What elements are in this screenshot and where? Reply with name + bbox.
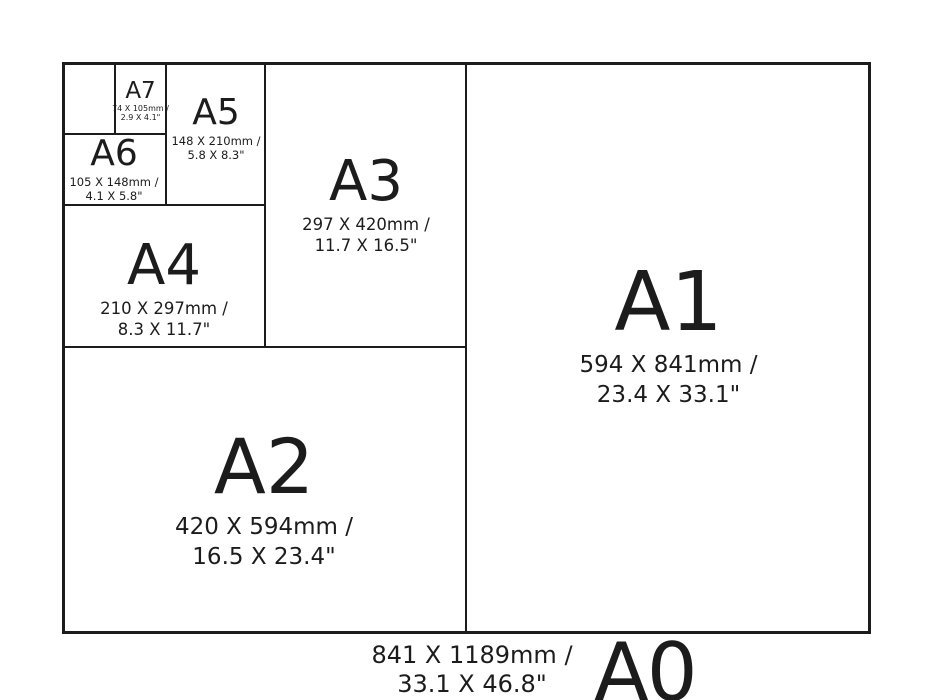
a0-label: A0 xyxy=(594,633,696,700)
a5-dims-mm: 148 X 210mm / xyxy=(171,134,260,148)
a6-dimensions: 105 X 148mm / 4.1 X 5.8" xyxy=(69,175,158,203)
a1-label: A1 xyxy=(614,261,722,345)
a1-dims-mm: 594 X 841mm / xyxy=(579,351,757,381)
a3-dims-mm: 297 X 420mm / xyxy=(302,215,430,236)
a5-dimensions: 148 X 210mm / 5.8 X 8.3" xyxy=(171,134,260,162)
a1-dims-in: 23.4 X 33.1" xyxy=(579,381,757,411)
a3-dims-in: 11.7 X 16.5" xyxy=(302,236,430,257)
a4-label: A4 xyxy=(127,237,201,294)
a2-dims-mm: 420 X 594mm / xyxy=(175,513,353,543)
a3-dimensions: 297 X 420mm / 11.7 X 16.5" xyxy=(302,215,430,256)
a3-box: A3 297 X 420mm / 11.7 X 16.5" xyxy=(266,62,466,347)
a2-box: A2 420 X 594mm / 16.5 X 23.4" xyxy=(62,357,466,644)
a7-dims-mm: 74 X 105mm / xyxy=(112,104,169,113)
a5-label: A5 xyxy=(192,95,240,132)
a7-box: A7 74 X 105mm / 2.9 X 4.1" xyxy=(115,65,166,137)
a2-label: A2 xyxy=(214,428,314,506)
a1-dimensions: 594 X 841mm / 23.4 X 33.1" xyxy=(579,351,757,411)
a2-dims-in: 16.5 X 23.4" xyxy=(175,543,353,573)
a6-box: A6 105 X 148mm / 4.1 X 5.8" xyxy=(62,134,166,205)
a2-dimensions: 420 X 594mm / 16.5 X 23.4" xyxy=(175,513,353,573)
a4-dimensions: 210 X 297mm / 8.3 X 11.7" xyxy=(100,299,228,340)
a4-box: A4 210 X 297mm / 8.3 X 11.7" xyxy=(62,218,266,360)
a0-dimensions: 841 X 1189mm / 33.1 X 46.8" xyxy=(322,641,622,699)
a7-dimensions: 74 X 105mm / 2.9 X 4.1" xyxy=(112,104,169,122)
a6-label: A6 xyxy=(90,136,138,173)
a0-dims-mm: 841 X 1189mm / xyxy=(322,641,622,670)
a7-label: A7 xyxy=(125,80,155,103)
a6-dims-in: 4.1 X 5.8" xyxy=(69,189,158,203)
a7-dims-in: 2.9 X 4.1" xyxy=(112,113,169,122)
a6-dims-mm: 105 X 148mm / xyxy=(69,175,158,189)
a1-box: A1 594 X 841mm / 23.4 X 33.1" xyxy=(466,50,871,622)
a4-dims-in: 8.3 X 11.7" xyxy=(100,320,228,341)
a5-dims-in: 5.8 X 8.3" xyxy=(171,148,260,162)
a4-dims-mm: 210 X 297mm / xyxy=(100,299,228,320)
a0-dims-in: 33.1 X 46.8" xyxy=(322,670,622,699)
a3-label: A3 xyxy=(329,153,403,210)
a5-box: A5 148 X 210mm / 5.8 X 8.3" xyxy=(166,57,266,200)
paper-sizes-diagram: A7 74 X 105mm / 2.9 X 4.1" A6 105 X 148m… xyxy=(0,0,936,700)
